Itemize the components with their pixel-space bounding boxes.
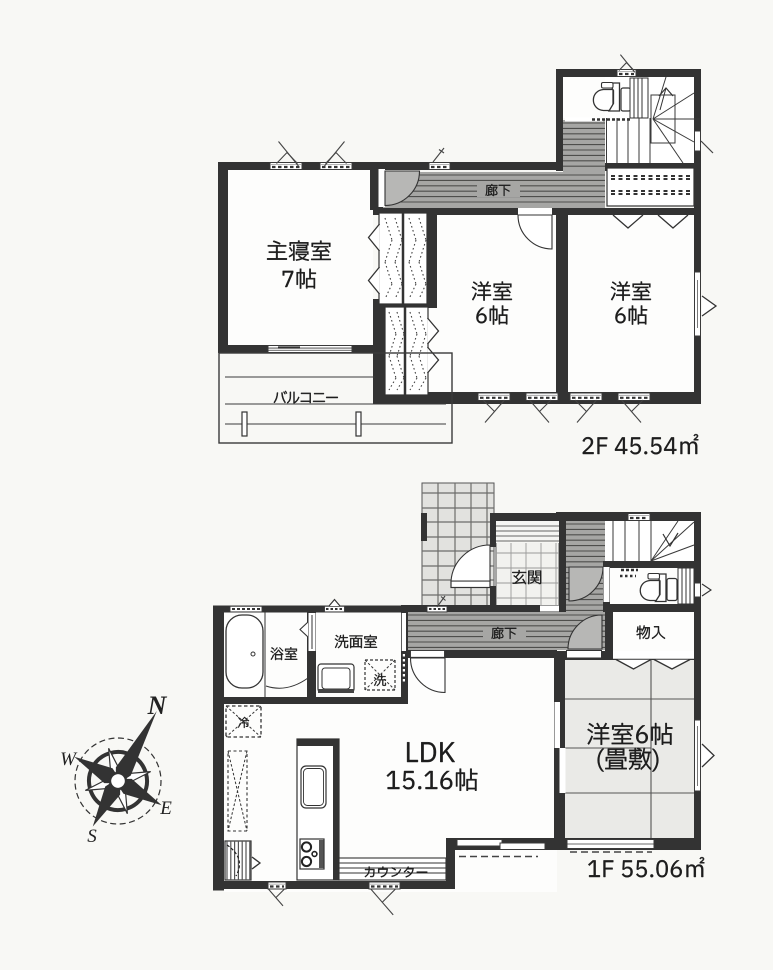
svg-text:W: W <box>60 749 78 770</box>
svg-text:N: N <box>147 691 168 720</box>
svg-text:S: S <box>87 826 97 847</box>
svg-text:E: E <box>159 798 172 819</box>
